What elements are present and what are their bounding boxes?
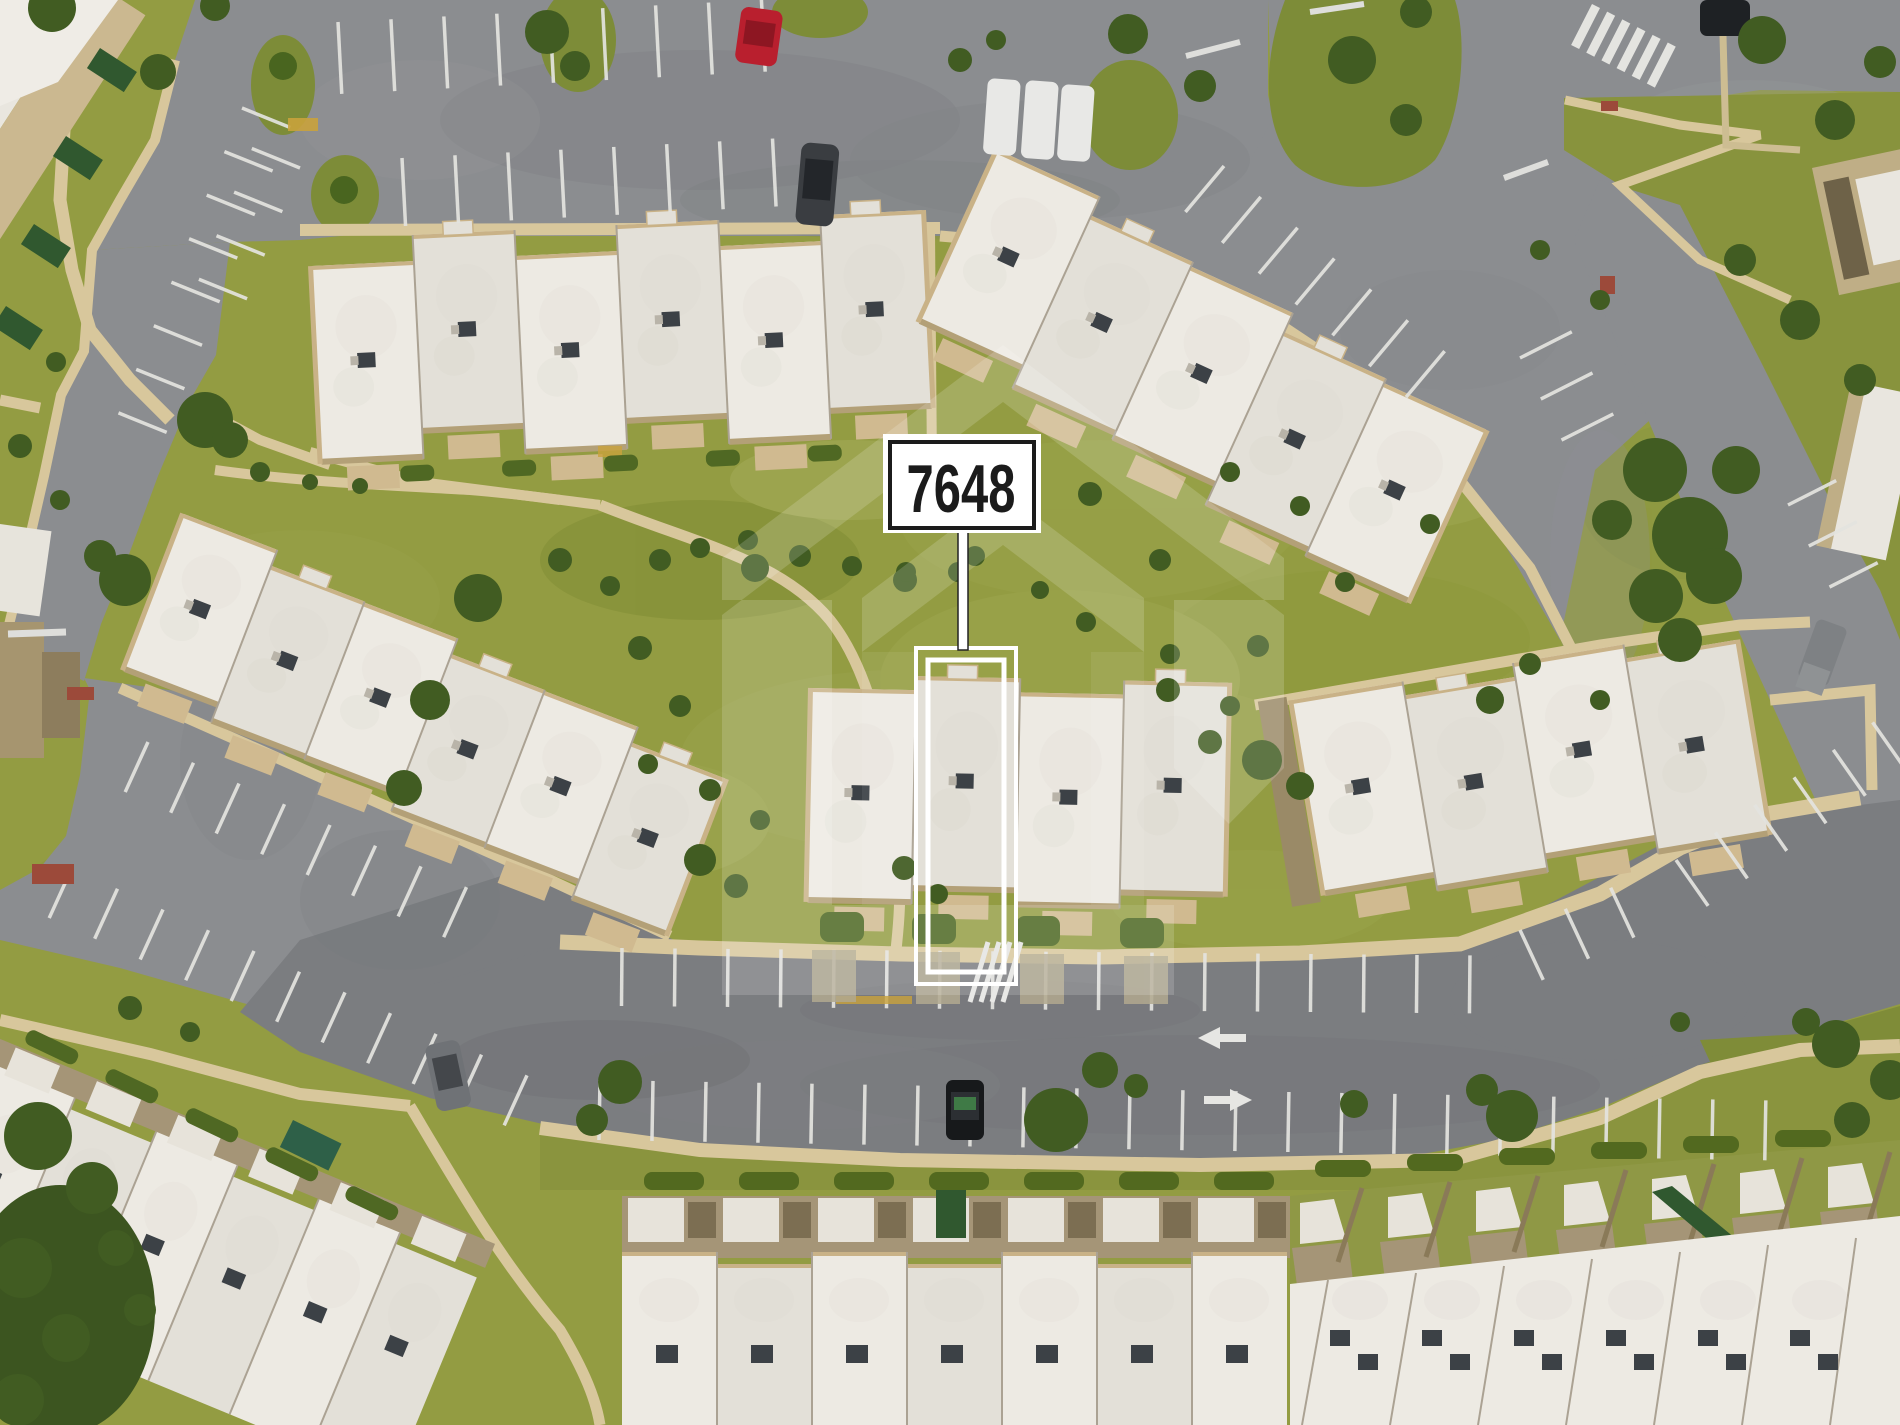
- svg-text:7648: 7648: [907, 450, 1016, 527]
